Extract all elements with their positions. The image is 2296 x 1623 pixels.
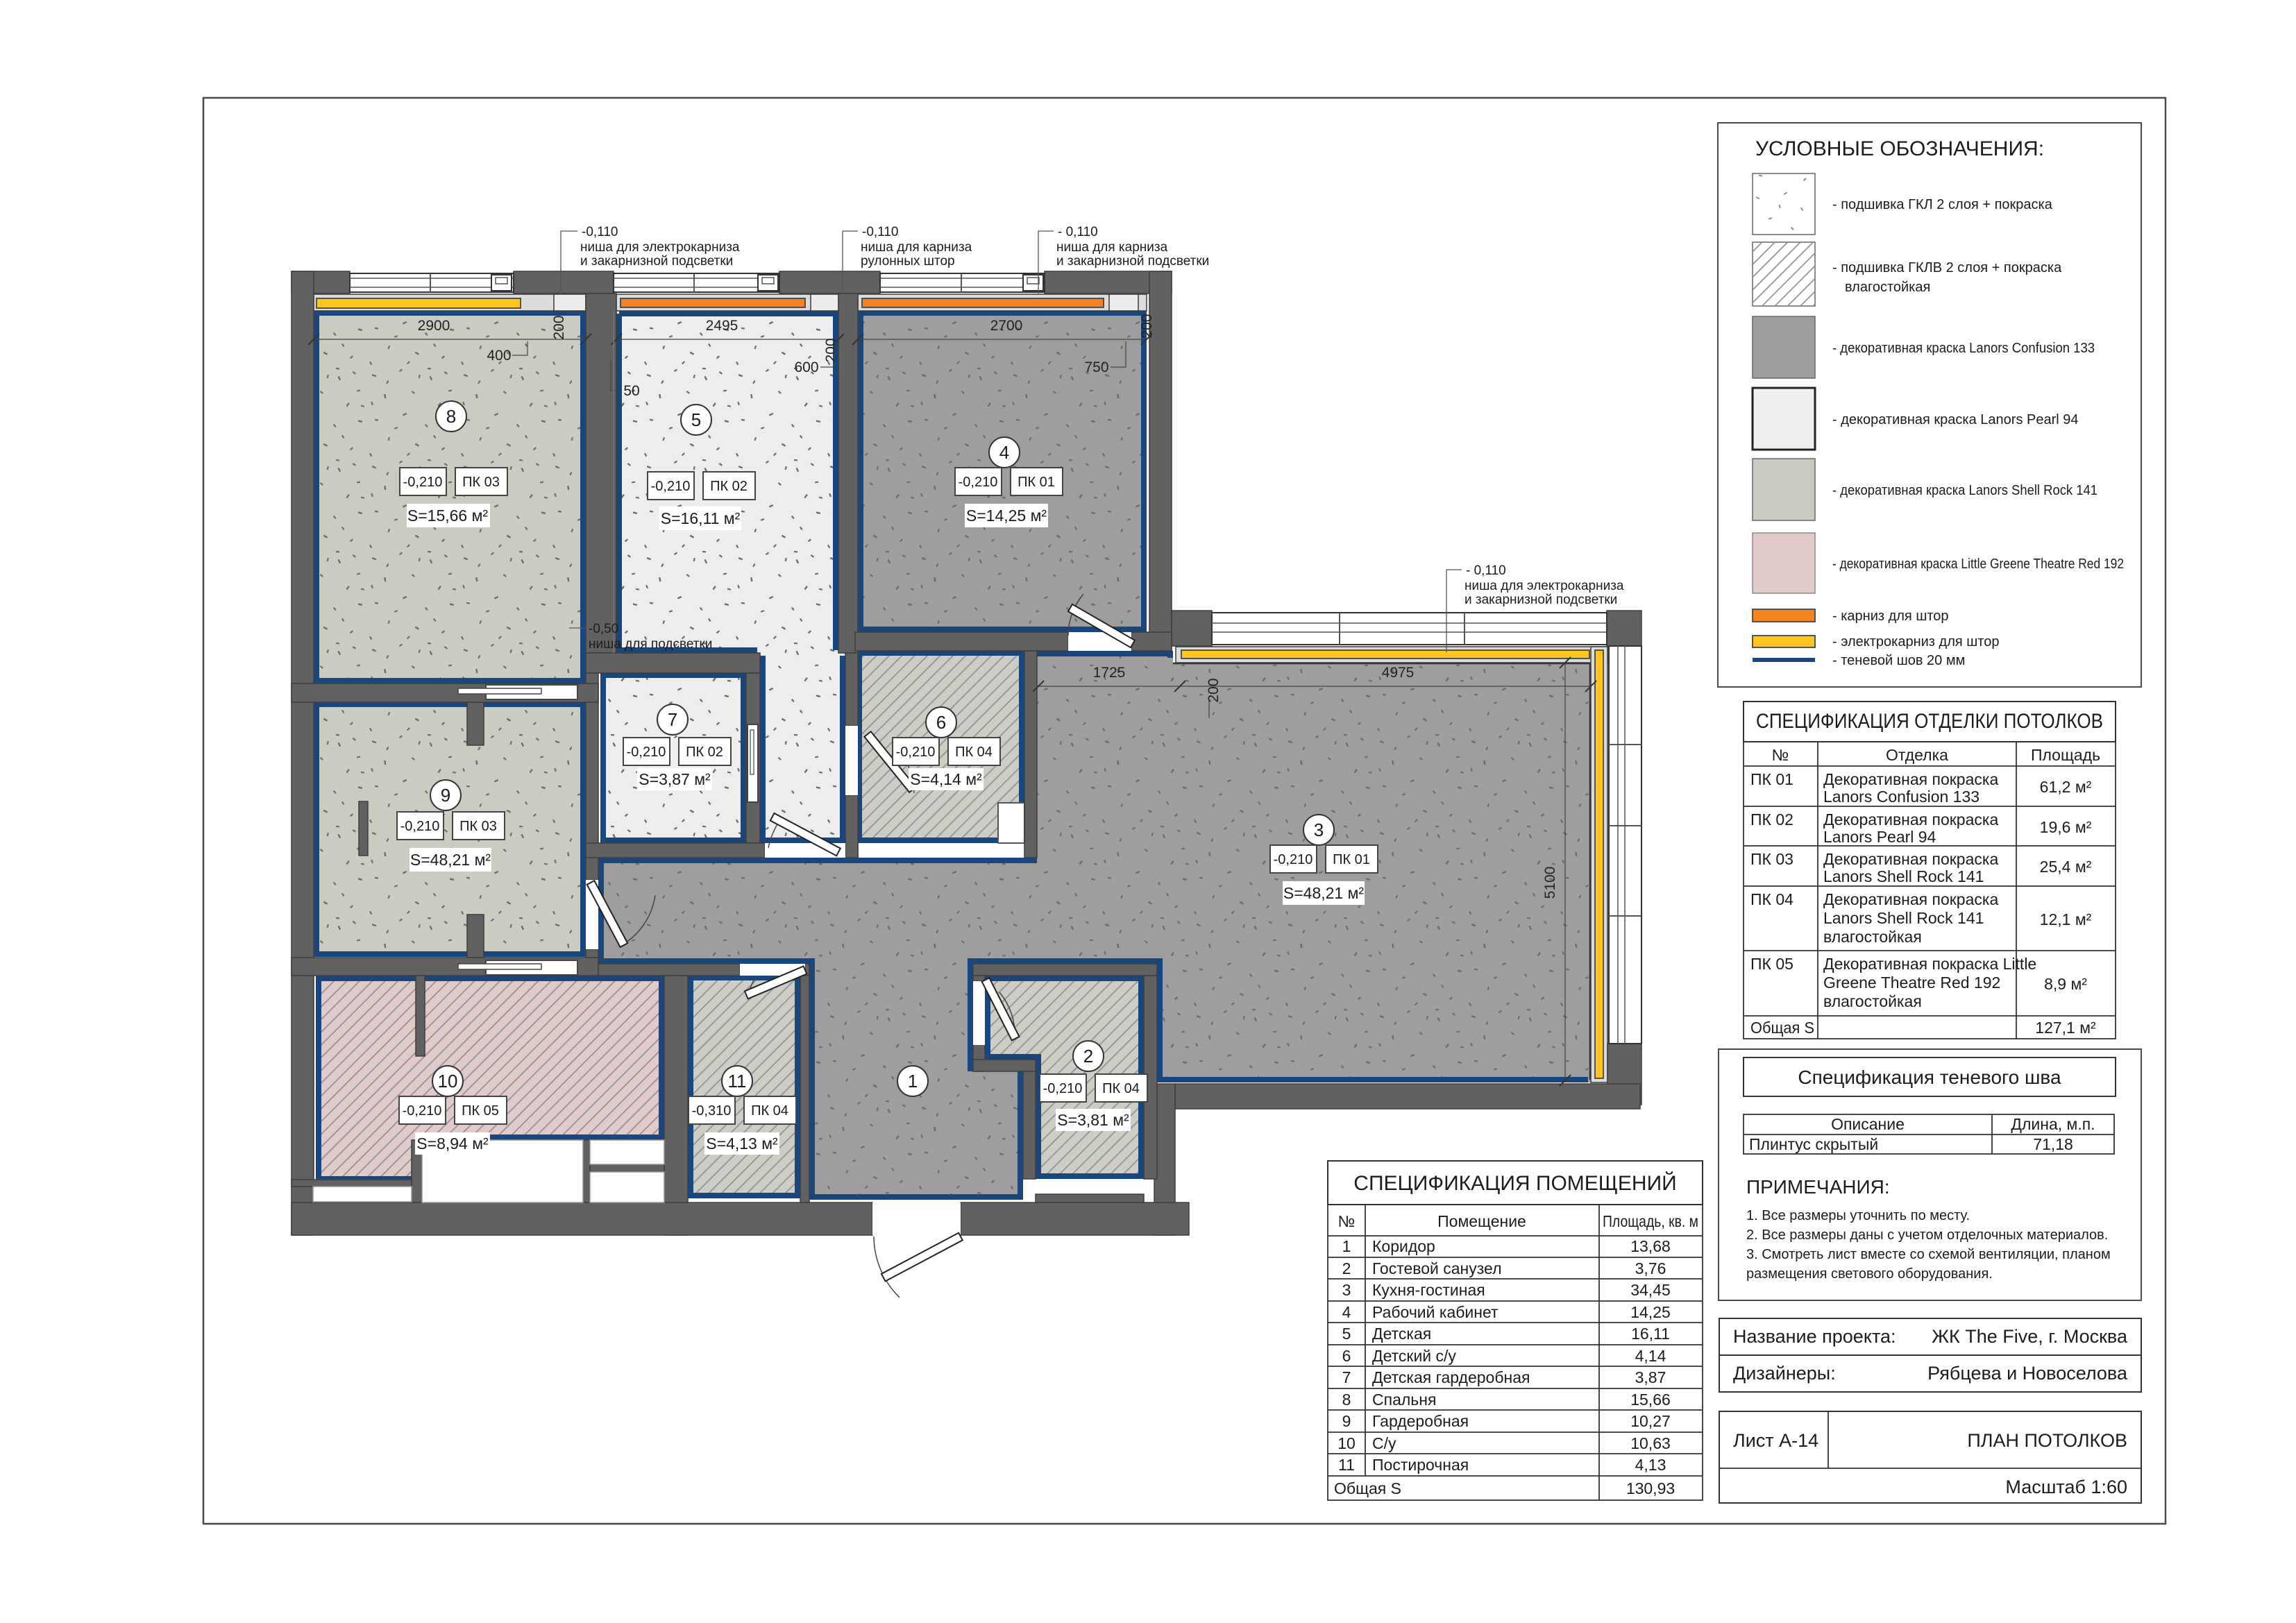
svg-text:Помещение: Помещение [1437,1212,1526,1230]
svg-text:Lanors Shell Rock 141: Lanors Shell Rock 141 [1823,909,1984,927]
svg-text:Декоративная покраска: Декоративная покраска [1823,890,1998,908]
svg-text:ЖК The Five, г. Москва: ЖК The Five, г. Москва [1932,1326,2128,1347]
svg-text:71,18: 71,18 [2033,1135,2073,1153]
svg-text:-0,110: -0,110 [862,225,898,239]
svg-text:ниша для подсветки: ниша для подсветки [589,637,712,652]
svg-text:13,68: 13,68 [1630,1237,1671,1255]
svg-text:-0,210: -0,210 [403,475,443,490]
svg-text:2495: 2495 [706,318,738,334]
svg-text:размещения светового оборудова: размещения светового оборудования. [1746,1266,1993,1282]
svg-text:7: 7 [668,709,677,730]
svg-text:Площадь: Площадь [2031,746,2100,764]
svg-text:-0,210: -0,210 [651,479,691,494]
svg-text:11: 11 [1338,1456,1355,1474]
svg-text:- декоративная краска Little G: - декоративная краска Little Greene Thea… [1832,556,2124,572]
svg-text:-0,50: -0,50 [589,622,618,636]
svg-text:-0,210: -0,210 [400,819,440,834]
svg-text:Декоративная покраска: Декоративная покраска [1823,770,1998,788]
svg-text:ПК 02: ПК 02 [1750,810,1793,829]
svg-text:влагостойкая: влагостойкая [1823,992,1922,1010]
svg-text:ПК 03: ПК 03 [462,475,500,490]
svg-text:Декоративная покраска Little: Декоративная покраска Little [1823,955,2036,973]
svg-text:-0,210: -0,210 [1043,1081,1083,1096]
svg-text:СПЕЦИФИКАЦИЯ ОТДЕЛКИ ПОТОЛКОВ: СПЕЦИФИКАЦИЯ ОТДЕЛКИ ПОТОЛКОВ [1756,710,2103,733]
svg-text:-0,210: -0,210 [959,475,998,490]
svg-text:4: 4 [999,442,1009,463]
svg-text:ПЛАН ПОТОЛКОВ: ПЛАН ПОТОЛКОВ [1967,1430,2127,1451]
svg-text:- подшивка ГКЛВ 2 слоя + покра: - подшивка ГКЛВ 2 слоя + покраска [1832,260,2062,275]
svg-text:Гардеробная: Гардеробная [1372,1412,1469,1430]
svg-text:Лист А-14: Лист А-14 [1733,1430,1818,1451]
svg-text:S=16,11 м²: S=16,11 м² [661,509,741,527]
svg-text:ниша для карниза: ниша для карниза [1056,240,1168,255]
svg-text:влагостойкая: влагостойкая [1845,280,1930,295]
svg-text:11: 11 [728,1071,747,1091]
svg-text:34,45: 34,45 [1630,1281,1671,1299]
svg-text:ПРИМЕЧАНИЯ:: ПРИМЕЧАНИЯ: [1746,1176,1890,1198]
svg-text:1: 1 [1342,1237,1351,1255]
svg-text:3: 3 [1314,819,1324,840]
svg-text:ниша для карниза: ниша для карниза [861,240,972,255]
svg-text:5: 5 [1342,1325,1351,1343]
svg-text:ПК 04: ПК 04 [1102,1081,1140,1096]
svg-text:-0,110: -0,110 [582,225,618,239]
svg-text:8,9 м²: 8,9 м² [2044,975,2087,993]
svg-text:19,6 м²: 19,6 м² [2040,818,2092,836]
svg-text:Lanors Pearl 94: Lanors Pearl 94 [1823,828,1936,846]
svg-text:Детская гардеробная: Детская гардеробная [1372,1368,1530,1386]
svg-text:200: 200 [1206,678,1222,702]
svg-text:2: 2 [1342,1259,1351,1277]
svg-text:-0,210: -0,210 [627,745,666,760]
svg-text:ПК 01: ПК 01 [1333,852,1370,867]
svg-text:- 0,110: - 0,110 [1058,225,1098,239]
svg-text:Гостевой санузел: Гостевой санузел [1372,1259,1502,1277]
svg-text:2: 2 [1083,1046,1093,1067]
svg-text:ПК 03: ПК 03 [1750,850,1793,868]
svg-text:4: 4 [1342,1303,1351,1321]
svg-text:Описание: Описание [1831,1115,1905,1133]
svg-text:Отделка: Отделка [1886,746,1948,764]
svg-text:10: 10 [438,1071,458,1091]
svg-text:- 0,110: - 0,110 [1466,563,1506,578]
svg-text:Длина, м.п.: Длина, м.п. [2011,1115,2095,1133]
svg-text:ПК 02: ПК 02 [686,745,723,760]
svg-text:Рабочий кабинет: Рабочий кабинет [1372,1303,1499,1321]
svg-text:3,87: 3,87 [1635,1368,1666,1386]
svg-text:1. Все размеры уточнить по мес: 1. Все размеры уточнить по месту. [1746,1208,1970,1223]
svg-text:2900: 2900 [418,318,450,334]
svg-text:S=3,87 м²: S=3,87 м² [639,770,711,788]
svg-text:S=4,13 м²: S=4,13 м² [706,1135,778,1153]
svg-text:Дизайнеры:: Дизайнеры: [1733,1363,1836,1384]
svg-text:- декоративная краска Lanors C: - декоративная краска Lanors Confusion 1… [1832,341,2095,356]
svg-text:16,11: 16,11 [1631,1325,1670,1343]
svg-text:2700: 2700 [990,318,1023,334]
svg-text:400: 400 [487,348,511,364]
svg-text:Декоративная покраска: Декоративная покраска [1823,850,1998,868]
svg-text:С/у: С/у [1372,1434,1396,1452]
svg-text:10: 10 [1337,1434,1356,1452]
svg-text:9: 9 [1342,1412,1351,1430]
svg-text:-0,210: -0,210 [896,745,936,760]
svg-text:8: 8 [1342,1391,1351,1409]
svg-text:ПК 04: ПК 04 [955,745,993,760]
svg-text:ПК 01: ПК 01 [1018,475,1055,490]
svg-text:и закарнизной подсветки: и закарнизной подсветки [580,254,733,269]
svg-text:рулонных штор: рулонных штор [861,254,955,269]
svg-text:Спальня: Спальня [1372,1391,1436,1409]
svg-text:12,1 м²: 12,1 м² [2040,910,2092,928]
svg-text:127,1 м²: 127,1 м² [2035,1019,2096,1037]
svg-text:5100: 5100 [1542,867,1558,899]
svg-text:9: 9 [441,785,450,806]
svg-text:600: 600 [794,359,818,375]
svg-text:50: 50 [623,383,639,399]
svg-text:- теневой шов 20 мм: - теневой шов 20 мм [1832,653,1965,668]
svg-text:5: 5 [691,409,701,430]
svg-text:Рябцева и Новоселова: Рябцева и Новоселова [1927,1363,2128,1384]
svg-text:Детский с/у: Детский с/у [1372,1347,1456,1365]
svg-text:Название проекта:: Название проекта: [1733,1326,1896,1347]
svg-text:S=8,94 м²: S=8,94 м² [416,1135,489,1153]
svg-text:Коридор: Коридор [1372,1237,1435,1255]
svg-text:Постирочная: Постирочная [1372,1456,1469,1474]
svg-text:14,25: 14,25 [1630,1303,1671,1321]
svg-text:200: 200 [551,315,567,339]
svg-text:4,14: 4,14 [1635,1347,1666,1365]
svg-text:и закарнизной подсветки: и закарнизной подсветки [1464,593,1617,607]
svg-text:61,2 м²: 61,2 м² [2040,778,2092,796]
svg-text:Декоративная покраска: Декоративная покраска [1823,810,1998,829]
svg-text:- подшивка ГКЛ 2 слоя + покрас: - подшивка ГКЛ 2 слоя + покраска [1832,197,2053,212]
svg-text:Lanors Confusion 133: Lanors Confusion 133 [1823,788,1980,806]
svg-text:200: 200 [823,338,839,362]
svg-text:№: № [1338,1212,1356,1230]
svg-text:200: 200 [1139,314,1155,338]
svg-text:Lanors Shell Rock 141: Lanors Shell Rock 141 [1823,867,1984,885]
svg-text:750: 750 [1084,359,1108,375]
svg-text:3: 3 [1342,1281,1351,1299]
svg-text:1: 1 [908,1071,918,1091]
svg-text:ниша для электрокарниза: ниша для электрокарниза [1464,579,1624,593]
svg-text:6: 6 [936,712,946,733]
svg-text:- электрокарниз для штор: - электрокарниз для штор [1832,634,2000,649]
svg-text:ПК 01: ПК 01 [1750,770,1793,788]
svg-text:7: 7 [1342,1368,1351,1386]
svg-text:130,93: 130,93 [1626,1479,1675,1497]
svg-text:4,13: 4,13 [1635,1456,1666,1474]
svg-text:- декоративная краска Lanors P: - декоративная краска Lanors Pearl 94 [1832,412,2079,427]
svg-text:№: № [1772,746,1789,764]
svg-text:S=48,21 м²: S=48,21 м² [1283,884,1365,902]
svg-text:Greene Theatre Red 192: Greene Theatre Red 192 [1823,974,2000,992]
svg-text:Общая S: Общая S [1334,1479,1401,1497]
svg-text:ПК 04: ПК 04 [751,1103,788,1119]
svg-text:4975: 4975 [1382,665,1415,681]
svg-text:2. Все размеры даны с учетом о: 2. Все размеры даны с учетом отделочных … [1746,1227,2108,1243]
svg-text:S=3,81 м²: S=3,81 м² [1057,1111,1129,1129]
svg-text:Общая S: Общая S [1750,1019,1814,1037]
svg-text:15,66: 15,66 [1630,1391,1671,1409]
svg-text:Кухня-гостиная: Кухня-гостиная [1372,1281,1485,1299]
svg-text:ПК 04: ПК 04 [1750,890,1793,908]
svg-text:25,4 м²: 25,4 м² [2040,858,2092,876]
svg-text:S=14,25 м²: S=14,25 м² [966,507,1047,525]
svg-text:8: 8 [446,406,456,427]
svg-text:Площадь, кв. м: Площадь, кв. м [1603,1212,1698,1230]
svg-text:1725: 1725 [1093,665,1126,681]
svg-text:- декоративная краска Lanors S: - декоративная краска Lanors Shell Rock … [1832,483,2097,498]
svg-text:10,63: 10,63 [1630,1434,1671,1452]
svg-text:СПЕЦИФИКАЦИЯ ПОМЕЩЕНИЙ: СПЕЦИФИКАЦИЯ ПОМЕЩЕНИЙ [1353,1171,1676,1195]
svg-text:ПК 03: ПК 03 [459,819,497,834]
svg-text:ПК 05: ПК 05 [462,1103,499,1119]
svg-text:10,27: 10,27 [1630,1412,1671,1430]
svg-text:ПК 05: ПК 05 [1750,955,1793,973]
svg-text:ПК 02: ПК 02 [710,479,748,494]
svg-text:-0,310: -0,310 [692,1103,732,1119]
svg-text:S=15,66 м²: S=15,66 м² [407,507,489,525]
svg-text:-0,210: -0,210 [1274,852,1313,867]
svg-text:и закарнизной подсветки: и закарнизной подсветки [1056,254,1209,269]
svg-text:3. Смотреть лист вместе со схе: 3. Смотреть лист вместе со схемой вентил… [1746,1247,2111,1262]
svg-text:ниша для электрокарниза: ниша для электрокарниза [580,240,740,255]
svg-text:3,76: 3,76 [1635,1259,1666,1277]
svg-text:- карниз для штор: - карниз для штор [1832,609,1949,624]
svg-text:-0,210: -0,210 [403,1103,442,1119]
svg-text:S=48,21 м²: S=48,21 м² [410,851,491,869]
svg-text:влагостойкая: влагостойкая [1823,928,1922,946]
svg-text:Спецификация теневого шва: Спецификация теневого шва [1798,1067,2061,1088]
svg-text:Плинтус скрытый: Плинтус скрытый [1749,1135,1878,1153]
svg-text:6: 6 [1342,1347,1351,1365]
svg-text:УСЛОВНЫЕ ОБОЗНАЧЕНИЯ:: УСЛОВНЫЕ ОБОЗНАЧЕНИЯ: [1755,137,2044,160]
svg-text:S=4,14 м²: S=4,14 м² [910,770,982,788]
svg-text:Масштаб 1:60: Масштаб 1:60 [2005,1477,2127,1497]
svg-text:Детская: Детская [1372,1325,1431,1343]
